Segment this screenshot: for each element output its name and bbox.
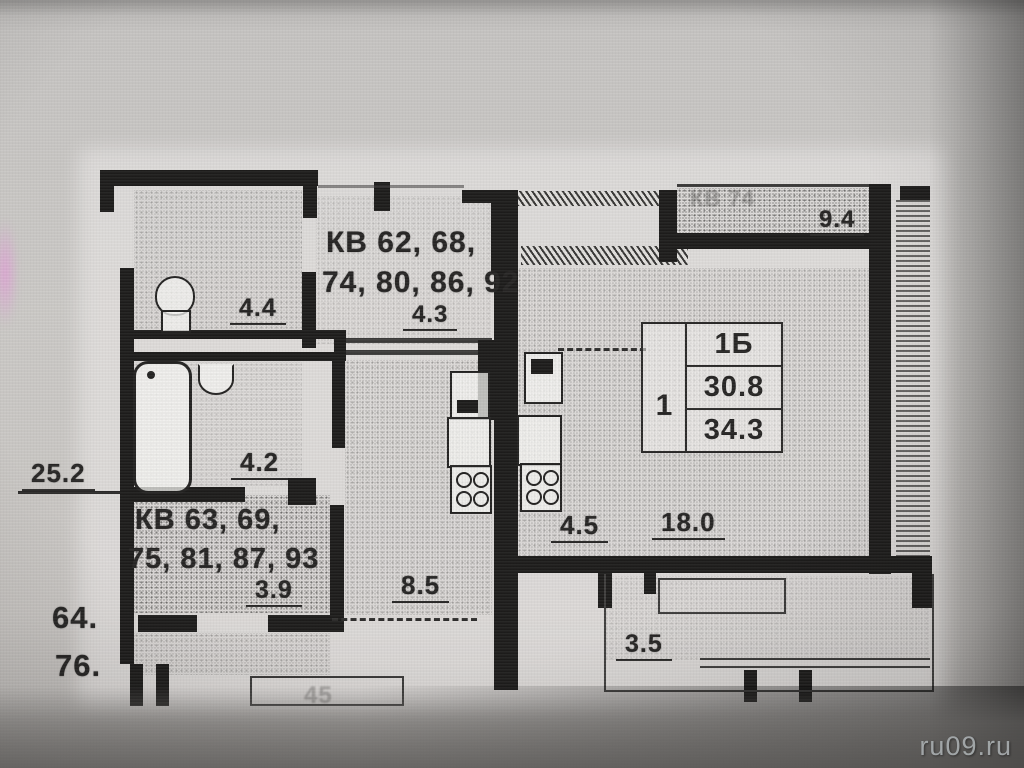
floorplan-photo: 45 1 1Б 30.8 34.3 [0,0,1024,768]
wall-segment [268,615,330,632]
dimension-room: 4.4 [230,294,286,323]
stove-icon [520,463,562,512]
wall-segment [900,186,930,200]
wall-segment [100,170,318,186]
wall-segment [120,268,134,664]
outer-wall-hatch [896,200,930,572]
apartment-numbers-top: 74, 80, 86, 92 [322,266,520,300]
counter-icon [447,417,491,468]
floor-plan-drawing: 45 1 1Б 30.8 34.3 [0,0,1024,768]
wall-segment [512,556,932,573]
area-stamp-table: 1 1Б 30.8 34.3 [641,322,783,453]
wall-segment [659,190,677,262]
faint-apartment-number: КВ 74 [690,186,755,212]
site-watermark: ru09.ru [919,731,1012,762]
apartment-numbers-top: КВ 62, 68, [326,226,476,260]
dimension-total-width: 25.2 [22,458,95,489]
wall-segment [138,615,197,632]
wall-segment [330,505,344,632]
wall-segment [100,170,114,212]
window-hatch [517,191,660,206]
wall-line [346,350,492,355]
dimension-leader-line [18,491,120,494]
wall-line [346,338,492,343]
balcony-door-outline [658,578,786,614]
entry-outline: 45 [250,676,404,706]
dimension-kitchen: 4.5 [551,510,608,541]
dimension-hall: 4.3 [403,301,457,329]
dimension-room: 4.2 [231,447,288,478]
balcony-rail-line [700,666,930,668]
wall-segment [288,478,316,505]
bathtub-icon [133,361,192,494]
stamp-type-cell: 1Б [687,324,781,367]
stove-icon [450,465,492,514]
dimension-corridor: 8.5 [392,570,449,601]
sink-icon [450,371,490,420]
door-opening-dashed [332,618,477,621]
wall-line [318,185,464,188]
wall-segment [869,184,891,574]
apartment-numbers-bottom: 75, 81, 87, 93 [128,543,319,576]
wall-segment [130,664,143,706]
floor-number: 76. [55,648,101,684]
balcony-rail-line [700,658,930,660]
wall-segment [494,190,518,690]
wall-segment [134,352,346,361]
washbasin-icon [198,364,234,395]
counter-icon [517,415,562,466]
dimension-living-room: 18.0 [652,507,725,538]
dimension-hall: 3.9 [246,576,302,605]
sink-icon [524,352,563,404]
door-opening-dashed [558,348,646,351]
floor-number: 64. [52,600,98,636]
bathtub-drain-icon [147,371,155,379]
dimension-balcony-bottom: 3.5 [616,630,672,659]
dimension-balcony-top: 9.4 [810,206,864,234]
stamp-total-area-cell: 34.3 [687,410,781,451]
stamp-living-area-cell: 30.8 [687,367,781,410]
faint-number: 45 [304,682,333,706]
stamp-unit-cell: 1 [643,324,687,451]
apartment-numbers-bottom: КВ 63, 69, [135,504,280,537]
toilet-tank-icon [161,310,191,333]
wall-segment [332,356,345,448]
wall-segment [156,664,169,706]
wall-segment [303,186,317,218]
